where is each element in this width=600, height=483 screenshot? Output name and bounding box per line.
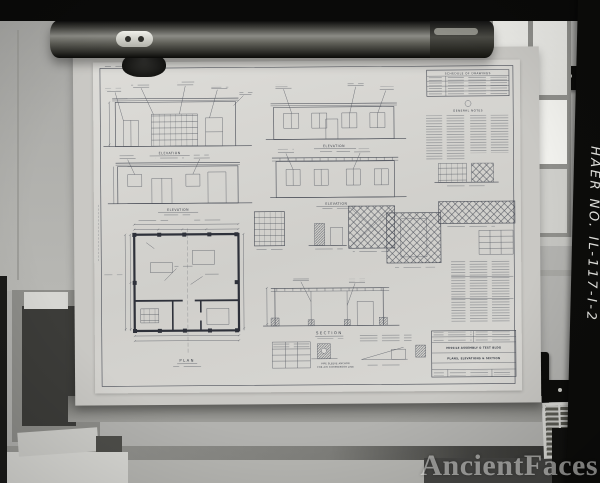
floor-plan: PLAN bbox=[104, 218, 245, 368]
numbered-notes bbox=[451, 259, 514, 322]
elevation-b: ELEVATION bbox=[265, 82, 406, 153]
pipe-caption-2: FOR AIR COMPRESSOR LINE bbox=[317, 366, 354, 369]
elevation-c-caption: ELEVATION bbox=[167, 208, 189, 212]
drafting-board: ELEVATION bbox=[73, 46, 541, 405]
bar-highlight bbox=[434, 28, 478, 35]
bar-end-cap bbox=[430, 20, 494, 58]
elevation-d-caption: ELEVATION bbox=[325, 202, 347, 206]
schedule-title: SCHEDULE OF DRAWINGS bbox=[445, 71, 491, 75]
anchor-detail bbox=[357, 333, 425, 367]
pipe-sleeve-detail: PIPE SLEEVE ANCHOR FOR AIR COMPRESSOR LI… bbox=[311, 344, 354, 369]
architectural-drawing: ELEVATION bbox=[93, 60, 522, 394]
plate-dot bbox=[138, 36, 144, 42]
photo-top-border bbox=[0, 0, 600, 21]
elevation-a: ELEVATION bbox=[103, 81, 253, 160]
wall-edge bbox=[17, 30, 19, 280]
photograph-of-drawing-on-drafting-board: ELEVATION bbox=[0, 0, 600, 483]
elevation-d: ELEVATION bbox=[270, 148, 407, 210]
small-table bbox=[479, 230, 513, 254]
paper-on-cabinet bbox=[24, 292, 68, 309]
plate-dot bbox=[125, 36, 131, 42]
gutter-detail bbox=[434, 163, 498, 188]
desk-object bbox=[96, 436, 122, 452]
schedule-table-small bbox=[272, 342, 310, 368]
background-wall bbox=[0, 21, 80, 291]
grid-detail bbox=[254, 212, 284, 246]
section-drawing: SECTION bbox=[263, 277, 400, 341]
watermark: AncientFaces bbox=[420, 449, 598, 483]
general-notes: GENERAL NOTES bbox=[426, 100, 510, 159]
notes-title: GENERAL NOTES bbox=[453, 108, 483, 112]
elevation-a-caption: ELEVATION bbox=[159, 151, 181, 155]
haer-number-label: HAER NO. IL-117-I-2 bbox=[583, 146, 600, 323]
title-block: MISSILE ASSEMBLY & TEST BLDG PLANS, ELEV… bbox=[432, 330, 517, 377]
title-block-project: MISSILE ASSEMBLY & TEST BLDG bbox=[446, 346, 501, 350]
parallel-bar bbox=[50, 20, 494, 58]
wall-section-detail bbox=[308, 223, 346, 250]
elevation-b-caption: ELEVATION bbox=[323, 144, 345, 148]
photo-left-edge bbox=[0, 276, 7, 483]
lattice-detail-2 bbox=[387, 213, 442, 268]
drawing-sheet: ELEVATION bbox=[93, 60, 522, 394]
lattice-strip-detail bbox=[439, 201, 515, 224]
schedule-of-drawings: SCHEDULE OF DRAWINGS bbox=[427, 70, 509, 97]
section-caption: SECTION bbox=[316, 330, 343, 335]
title-block-sheet-title: PLANS, ELEVATIONS & SECTION bbox=[447, 356, 500, 360]
plan-caption: PLAN bbox=[179, 358, 195, 363]
elevation-c: ELEVATION bbox=[108, 154, 253, 216]
bar-label-plate bbox=[116, 31, 153, 47]
